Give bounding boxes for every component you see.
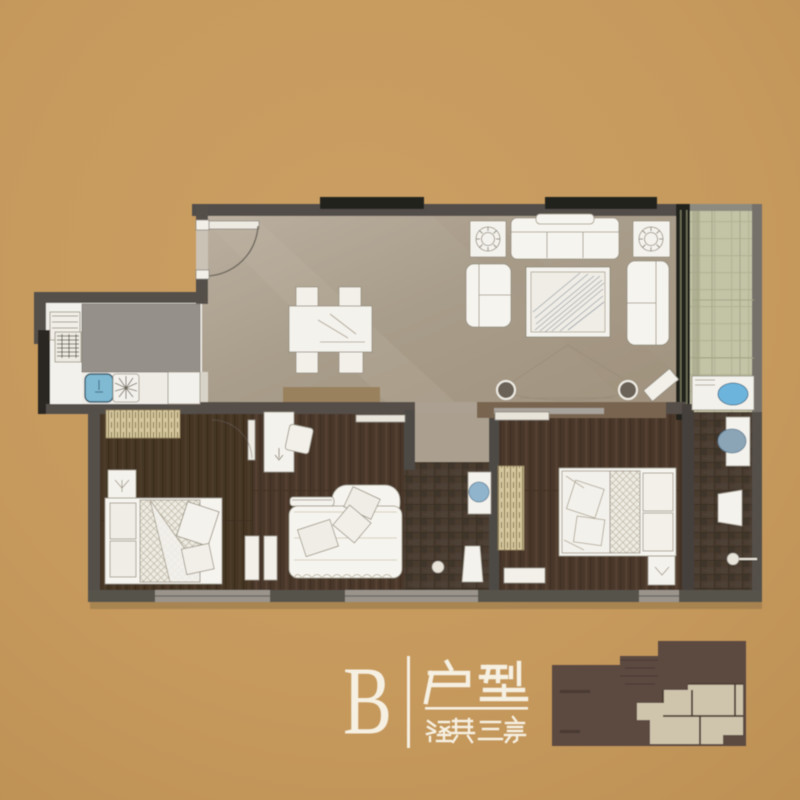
svg-text:B: B [343, 648, 392, 755]
